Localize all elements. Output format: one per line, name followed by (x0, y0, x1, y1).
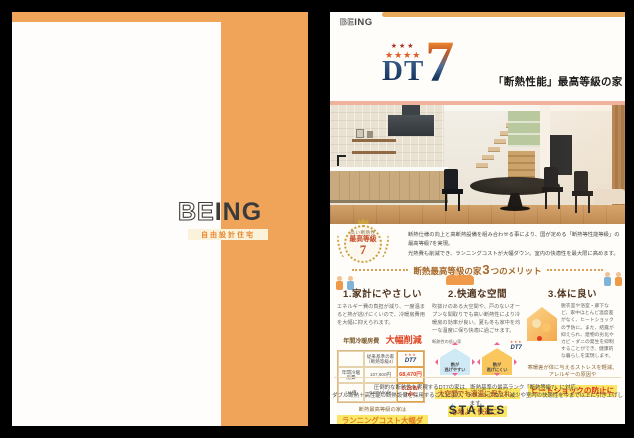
cover-subtitle: 自由設計住宅 (201, 230, 255, 240)
footer-divider (334, 377, 621, 378)
dt7-mini-logo: ★★★ DT7 (404, 354, 416, 364)
crown-icon (358, 218, 369, 224)
being-logo: BEING (178, 198, 262, 227)
heat-arrow-icon (474, 359, 480, 365)
dt7-mini-logo: ★★★DT7 (510, 341, 522, 351)
heat-arrow-icon (494, 339, 500, 345)
dt7-logo-dt: DT (382, 60, 424, 84)
merit3-content-row: 脱衣室や浴室・廊下など、家中ほとんど温度差がなく、ヒートショックの予防に。また、… (527, 303, 618, 361)
badge-circle: 高い断熱性 最高等級 7 (344, 225, 382, 263)
stars-icon: ★★★ (391, 43, 416, 50)
heat-arrow-icon (432, 359, 438, 365)
being-logo-ing: ING (215, 198, 262, 226)
merit1-body: エネルギー費の負担が減り、一度温まると熱が逃げにくいので、冷暖房費用を大幅に抑え… (337, 303, 428, 327)
intro-line2: 光熱費も削減でき、ランニングコストが大幅ダウン。室内の快適性を最大限に高めます。 (408, 251, 619, 257)
dotted-line (352, 269, 408, 271)
dt7-logo-left: ★★★ ★★★★ DT (382, 43, 424, 84)
healthy-house-icon (527, 307, 557, 341)
heat-arrow-icon (452, 339, 458, 345)
merit1-label: 年間冷暖房費 (343, 339, 379, 345)
dt7-logo: ★★★ ★★★★ DT 7 (382, 39, 454, 84)
intro-line1: 断熱仕様の向上と高断熱設備を組み合わせる事により、国が定める「断熱等性能等級」の… (408, 232, 620, 247)
merit1-label-row: 年間冷暖房費 大幅削減 (337, 330, 428, 348)
being-logo-small: BEING (340, 17, 373, 28)
cover-subtitle-band: 自由設計住宅 (188, 229, 268, 240)
being-logo-be: BE (178, 198, 215, 226)
merit1-label-emphasis: 大幅削減 (386, 335, 422, 345)
grade7-badge: 高い断熱性 最高等級 7 (340, 218, 386, 268)
table-corner-cell (338, 351, 364, 367)
merit2-body: 吹抜けのある大空間や、戸のないオープンな間取りでも高い断熱性により冷暖房の効率が… (432, 303, 523, 335)
merit1-title: 1.家計にやさしい (337, 286, 428, 300)
sun-icon (522, 305, 529, 312)
table-row-label: 年間冷暖房費 (338, 367, 364, 383)
brochure-scan: BEING 自由設計住宅 BEING ★★★ ★★★★ DT 7 「断熱性能」最… (0, 0, 634, 438)
states-logo: STATES (330, 403, 625, 417)
being-small-ing: ING (354, 17, 372, 28)
dt7-page: BEING ★★★ ★★★★ DT 7 「断熱性能」最高等級の家 (330, 12, 625, 424)
dotted-line (547, 269, 603, 271)
sunlight-overlay (330, 105, 625, 224)
kitchen-photo (330, 105, 625, 224)
heat-arrow-icon (514, 359, 520, 365)
merit3-body: 脱衣室や浴室・廊下など、家中ほとんど温度差がなく、ヒートショックの予防に。また、… (561, 303, 618, 361)
merit3-title: 3.体に良い (527, 286, 618, 300)
heat-loss-diagram: 断熱性の低い家 熱が 逃げやすい 熱が 逃げにくい ★★★DT7 (432, 339, 523, 379)
page-tagline: 「断熱性能」最高等級の家 (493, 74, 623, 89)
high-insulation-house-icon: 熱が 逃げにくい (482, 348, 512, 375)
top-swoosh-bar (382, 12, 625, 17)
intro-paragraph: 断熱仕様の向上と高断熱設備を組み合わせる事により、国が定める「断熱等性能等級」の… (408, 231, 620, 259)
badge-number: 7 (360, 243, 367, 257)
being-small-be: BE (340, 17, 354, 28)
table-old-value: 107,600円 (364, 367, 397, 383)
merit2-title: 2.快適な空間 (432, 286, 523, 300)
footer-line1: 圧倒的な断熱性を実現するDT7の家は、断熱基準の最高ランク「断熱等級7」に対応。 (330, 383, 625, 391)
merit-column-3: 3.体に良い 脱衣室や浴室・廊下など、家中ほとんど温度差がなく、ヒートショックの… (527, 274, 618, 398)
table-header-old: 従来基準の家（断熱等級4） (364, 351, 397, 367)
low-insulation-house-icon: 熱が 逃げやすい (440, 348, 470, 375)
cover-page: BEING 自由設計住宅 (12, 12, 308, 426)
table-header-dt7: ★★★ DT7 (397, 351, 424, 367)
dt7-logo-seven: 7 (425, 39, 454, 84)
table-new-value: 68,470円 (397, 367, 424, 383)
